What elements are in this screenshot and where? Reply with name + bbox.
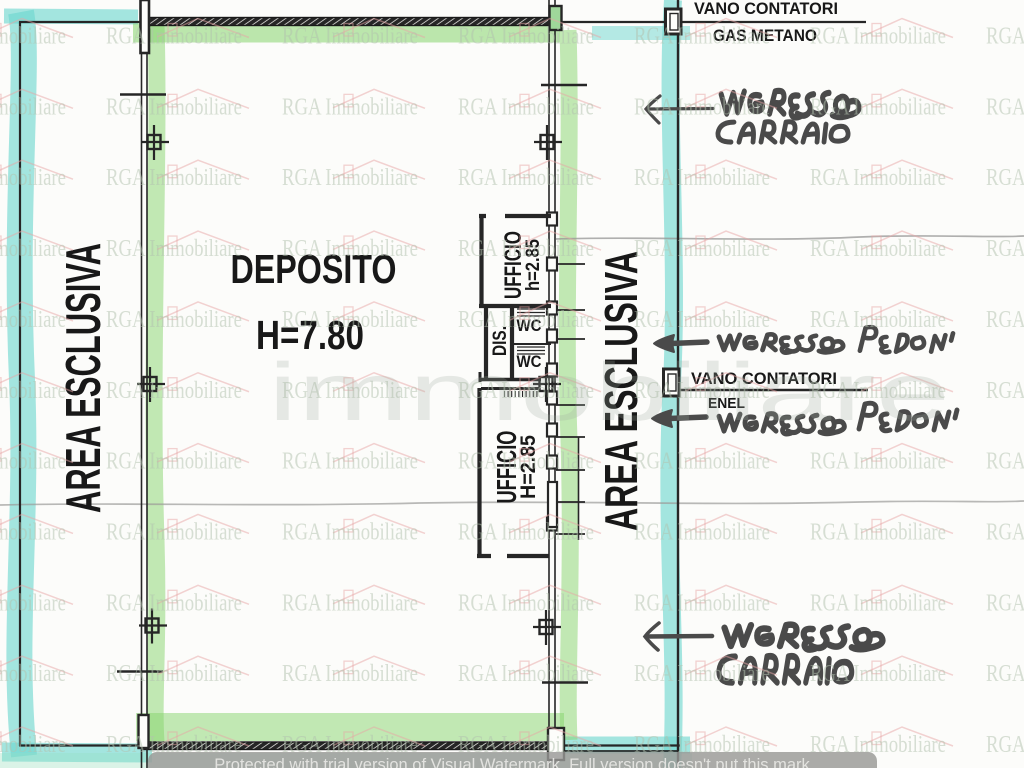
svg-text:RGA Immobiliare: RGA Immobiliare (282, 24, 418, 50)
svg-text:RGA Immobiliare: RGA Immobiliare (0, 94, 66, 120)
svg-text:RGA Immobiliare: RGA Immobiliare (106, 378, 242, 404)
svg-text:RGA Immobiliare: RGA Immobiliare (0, 236, 66, 262)
svg-text:RGA Immobiliare: RGA Immobiliare (634, 449, 770, 475)
svg-text:RGA Immobiliare: RGA Immobiliare (986, 661, 1024, 687)
svg-text:RGA Immobiliare: RGA Immobiliare (0, 378, 66, 404)
svg-text:RGA Immobiliare: RGA Immobiliare (106, 236, 242, 262)
svg-text:RGA Immobiliare: RGA Immobiliare (634, 165, 770, 191)
svg-text:RGA Immobiliare: RGA Immobiliare (810, 590, 946, 616)
svg-text:RGA Immobiliare: RGA Immobiliare (0, 307, 66, 333)
svg-text:RGA Immobiliare: RGA Immobiliare (282, 590, 418, 616)
svg-text:RGA Immobiliare: RGA Immobiliare (634, 661, 770, 687)
svg-text:RGA Immobiliare: RGA Immobiliare (458, 307, 594, 333)
svg-text:RGA Immobiliare: RGA Immobiliare (106, 165, 242, 191)
svg-text:RGA Immobiliare: RGA Immobiliare (986, 24, 1024, 50)
svg-text:RGA Immobiliare: RGA Immobiliare (458, 449, 594, 475)
svg-text:RGA Immobiliare: RGA Immobiliare (106, 449, 242, 475)
svg-text:RGA Immobiliare: RGA Immobiliare (282, 94, 418, 120)
svg-text:RGA Immobiliare: RGA Immobiliare (458, 94, 594, 120)
svg-text:RGA Immobiliare: RGA Immobiliare (458, 236, 594, 262)
svg-text:RGA Immobiliare: RGA Immobiliare (986, 165, 1024, 191)
svg-text:RGA Immobiliare: RGA Immobiliare (810, 94, 946, 120)
svg-text:immobiliare: immobiliare (268, 347, 950, 438)
svg-text:RGA Immobiliare: RGA Immobiliare (986, 732, 1024, 758)
svg-text:RGA Immobiliare: RGA Immobiliare (458, 590, 594, 616)
svg-text:RGA Immobiliare: RGA Immobiliare (986, 307, 1024, 333)
svg-text:RGA Immobiliare: RGA Immobiliare (810, 236, 946, 262)
svg-text:RGA Immobiliare: RGA Immobiliare (810, 24, 946, 50)
svg-text:RGA Immobiliare: RGA Immobiliare (0, 165, 66, 191)
svg-text:RGA Immobiliare: RGA Immobiliare (634, 519, 770, 545)
svg-text:RGA Immobiliare: RGA Immobiliare (986, 590, 1024, 616)
svg-text:RGA Immobiliare: RGA Immobiliare (282, 236, 418, 262)
svg-text:RGA Immobiliare: RGA Immobiliare (458, 519, 594, 545)
svg-text:RGA Immobiliare: RGA Immobiliare (106, 519, 242, 545)
svg-text:RGA Immobiliare: RGA Immobiliare (810, 449, 946, 475)
svg-text:VANO CONTATORI: VANO CONTATORI (694, 0, 838, 18)
svg-text:RGA Immobiliare: RGA Immobiliare (458, 24, 594, 50)
svg-text:RGA Immobiliare: RGA Immobiliare (810, 519, 946, 545)
svg-text:RGA Immobiliare: RGA Immobiliare (986, 236, 1024, 262)
svg-text:RGA Immobiliare: RGA Immobiliare (282, 661, 418, 687)
svg-text:RGA Immobiliare: RGA Immobiliare (458, 165, 594, 191)
svg-text:RGA Immobiliare: RGA Immobiliare (0, 449, 66, 475)
svg-text:RGA Immobiliare: RGA Immobiliare (106, 24, 242, 50)
svg-text:RGA Immobiliare: RGA Immobiliare (986, 449, 1024, 475)
svg-text:RGA Immobiliare: RGA Immobiliare (986, 378, 1024, 404)
svg-text:RGA Immobiliare: RGA Immobiliare (0, 661, 66, 687)
svg-text:RGA Immobiliare: RGA Immobiliare (106, 590, 242, 616)
svg-text:RGA Immobiliare: RGA Immobiliare (634, 590, 770, 616)
svg-text:RGA Immobiliare: RGA Immobiliare (986, 94, 1024, 120)
svg-text:RGA Immobiliare: RGA Immobiliare (634, 24, 770, 50)
svg-text:RGA Immobiliare: RGA Immobiliare (634, 94, 770, 120)
svg-text:RGA Immobiliare: RGA Immobiliare (282, 165, 418, 191)
svg-text:RGA Immobiliare: RGA Immobiliare (634, 307, 770, 333)
svg-text:RGA Immobiliare: RGA Immobiliare (0, 24, 66, 50)
svg-text:RGA Immobiliare: RGA Immobiliare (810, 165, 946, 191)
svg-text:RGA Immobiliare: RGA Immobiliare (810, 307, 946, 333)
svg-text:RGA Immobiliare: RGA Immobiliare (106, 94, 242, 120)
svg-text:Protected with trial version o: Protected with trial version of Visual W… (214, 756, 810, 768)
svg-text:RGA Immobiliare: RGA Immobiliare (106, 661, 242, 687)
svg-text:RGA Immobiliare: RGA Immobiliare (282, 519, 418, 545)
svg-text:RGA Immobiliare: RGA Immobiliare (0, 732, 66, 758)
svg-text:RGA Immobiliare: RGA Immobiliare (282, 307, 418, 333)
svg-text:RGA Immobiliare: RGA Immobiliare (986, 519, 1024, 545)
svg-text:RGA Immobiliare: RGA Immobiliare (458, 661, 594, 687)
svg-text:RGA Immobiliare: RGA Immobiliare (0, 590, 66, 616)
svg-text:RGA Immobiliare: RGA Immobiliare (106, 307, 242, 333)
svg-text:RGA Immobiliare: RGA Immobiliare (810, 661, 946, 687)
svg-text:RGA Immobiliare: RGA Immobiliare (634, 236, 770, 262)
svg-text:RGA Immobiliare: RGA Immobiliare (0, 519, 66, 545)
svg-text:RGA Immobiliare: RGA Immobiliare (282, 449, 418, 475)
